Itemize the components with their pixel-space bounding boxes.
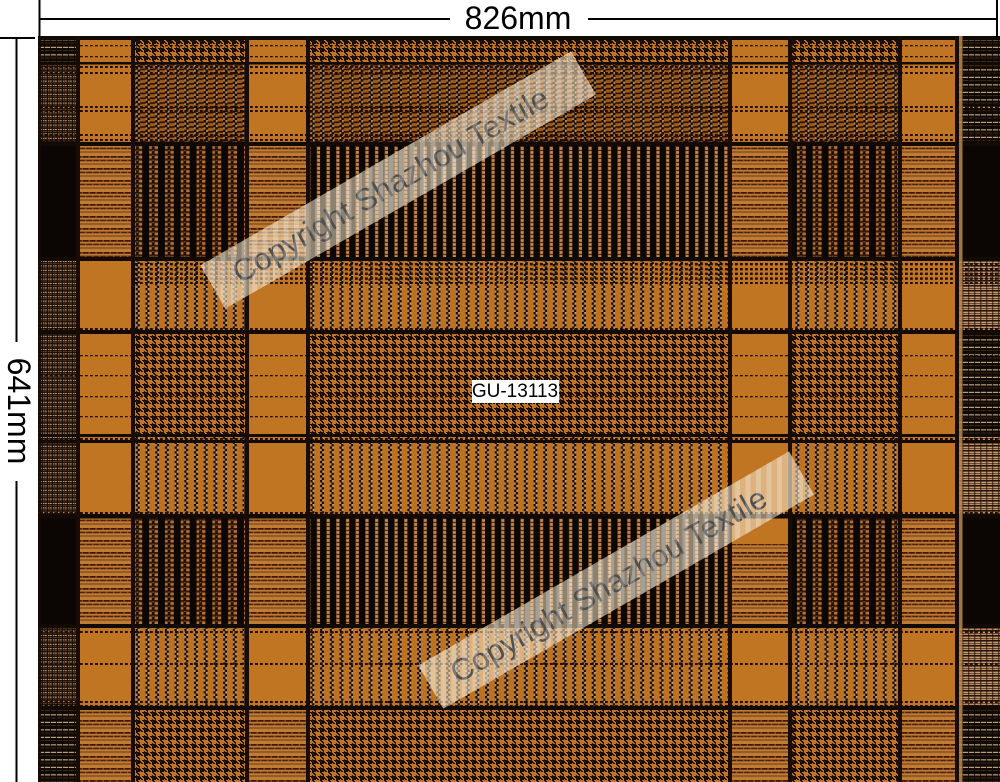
svg-text:826mm: 826mm xyxy=(465,0,572,36)
svg-text:GU-13113: GU-13113 xyxy=(472,381,558,402)
svg-text:641mm: 641mm xyxy=(1,358,37,465)
